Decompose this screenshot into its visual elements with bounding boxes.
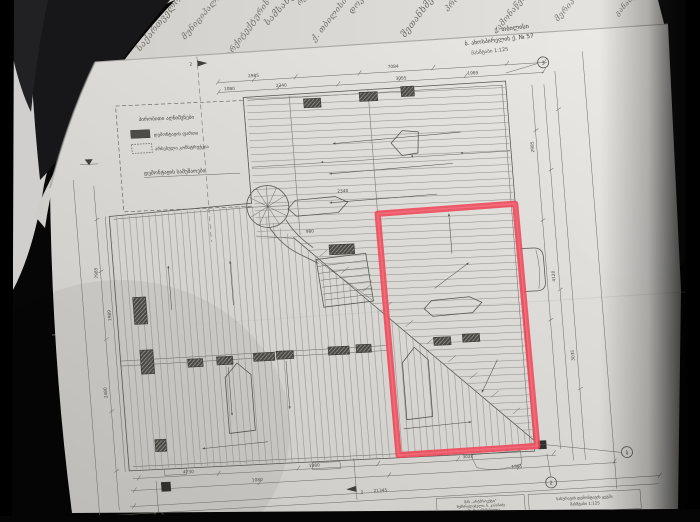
dimension-text: 1080 [252,477,264,483]
dimension-text: 21345 [373,488,387,495]
dimension-text: 7084 [387,64,399,70]
dimension-text: 7985 [93,267,100,278]
dimension-text: 3035 [395,75,407,81]
dimension-text: 1989 [467,70,479,76]
black-bar-left [0,0,14,522]
legend-swatch-demolition [130,130,150,139]
axis-bubble-2: 2 [549,481,553,487]
dimension-text: 1989 [107,310,114,321]
dimension-text: 2985 [248,73,260,79]
dimension-text: 4120 [551,270,558,281]
dimension-text: 1080 [224,86,236,92]
black-bar-right [686,0,700,522]
dimension-text: 2985 [529,141,536,152]
dimension-text: 2340 [276,83,288,89]
dimension-text: 1985 [511,464,523,470]
dimension-text: 3035 [570,349,577,360]
right-shadow [600,0,688,522]
dimension-text: 2480 [103,387,110,398]
axis-bubble-3: 3 [541,61,545,67]
photo-of-blueprint: საქართველოსმუნიციპალიტეტისარქიტექტურისსა… [0,0,700,522]
dimension-text: 1980 [309,462,321,468]
